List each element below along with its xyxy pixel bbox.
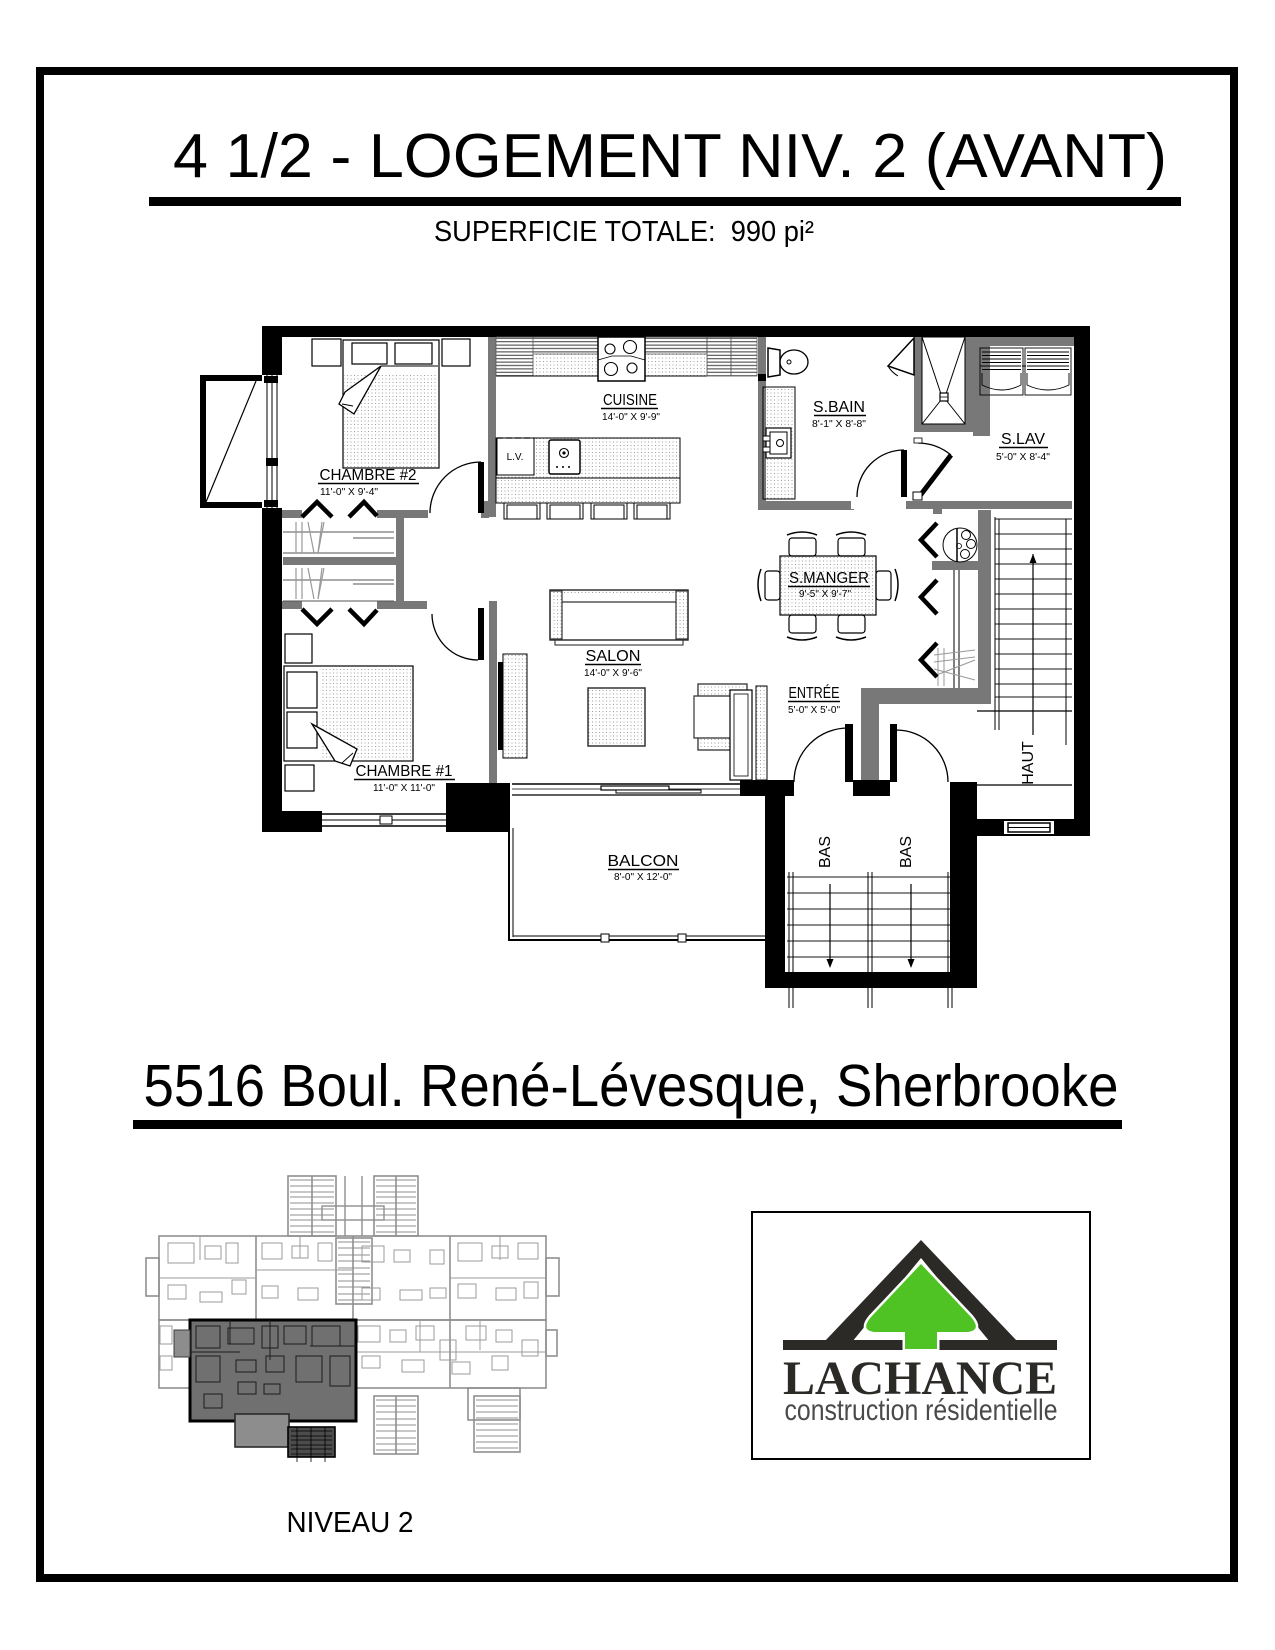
svg-text:11'-0" X 11'-0": 11'-0" X 11'-0" xyxy=(373,783,435,794)
svg-text:ENTRÉE: ENTRÉE xyxy=(789,683,840,702)
svg-text:SALON: SALON xyxy=(586,648,641,665)
svg-text:construction résidentielle: construction résidentielle xyxy=(785,1394,1058,1427)
svg-text:SUPERFICIE TOTALE: 990 pi²: SUPERFICIE TOTALE: 990 pi² xyxy=(434,216,814,248)
svg-text:5'-0" X 8'-4": 5'-0" X 8'-4" xyxy=(996,452,1050,463)
svg-text:BAS: BAS xyxy=(898,836,915,868)
svg-text:4 1/2 - LOGEMENT NIV. 2 (AVANT: 4 1/2 - LOGEMENT NIV. 2 (AVANT) xyxy=(173,122,1167,191)
svg-text:8'-1" X 8'-8": 8'-1" X 8'-8" xyxy=(812,419,866,430)
svg-text:S.MANGER: S.MANGER xyxy=(789,570,869,587)
svg-text:CHAMBRE #1: CHAMBRE #1 xyxy=(356,763,453,780)
svg-text:L.V.: L.V. xyxy=(507,452,524,463)
svg-text:5'-0" X 5'-0": 5'-0" X 5'-0" xyxy=(788,705,840,716)
svg-text:HAUT: HAUT xyxy=(1020,741,1037,785)
svg-text:5516 Boul. René-Lévesque, Sher: 5516 Boul. René-Lévesque, Sherbrooke xyxy=(144,1053,1119,1119)
svg-text:S.BAIN: S.BAIN xyxy=(813,399,865,416)
svg-text:NIVEAU 2: NIVEAU 2 xyxy=(287,1507,414,1539)
svg-text:8'-0" X 12'-0": 8'-0" X 12'-0" xyxy=(614,872,672,883)
svg-text:14'-0" X 9'-9": 14'-0" X 9'-9" xyxy=(602,412,660,423)
svg-text:CHAMBRE #2: CHAMBRE #2 xyxy=(320,467,417,484)
svg-text:9'-5" X 9'-7": 9'-5" X 9'-7" xyxy=(799,589,851,600)
svg-text:CUISINE: CUISINE xyxy=(603,392,657,409)
svg-text:11'-0" X 9'-4": 11'-0" X 9'-4" xyxy=(320,487,378,498)
svg-text:BALCON: BALCON xyxy=(608,853,679,870)
svg-text:14'-0" X 9'-6": 14'-0" X 9'-6" xyxy=(584,668,642,679)
svg-text:BAS: BAS xyxy=(817,836,834,868)
svg-text:S.LAV: S.LAV xyxy=(1001,431,1045,448)
